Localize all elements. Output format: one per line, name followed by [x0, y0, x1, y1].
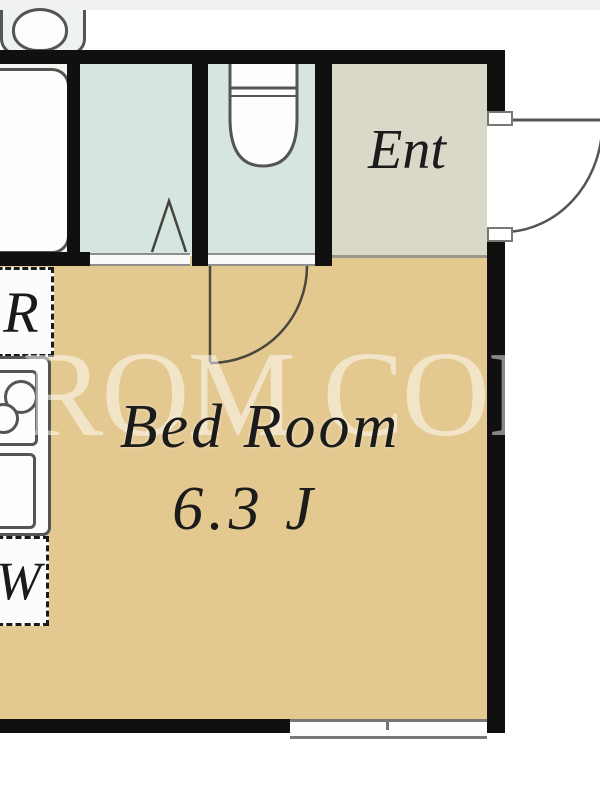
window-icon [290, 719, 487, 739]
wall-under-bath [0, 252, 90, 266]
floorplan-image: R W Ent Bed Room 6.3 J ROM COR [0, 0, 600, 800]
washroom-floor [80, 63, 192, 255]
kitchen-sink-icon [0, 453, 36, 529]
entrance-label: Ent [332, 122, 482, 178]
wall-bottom [0, 719, 290, 733]
wall-washroom-toilet [192, 63, 208, 266]
toilet-door-threshold [207, 253, 315, 266]
washer-label: W [0, 550, 41, 612]
washer-box: W [0, 536, 49, 626]
photo-edge-strip [0, 0, 600, 10]
entrance-door-jamb [487, 111, 513, 126]
window-mullion [386, 722, 389, 730]
refrigerator-box: R [0, 267, 54, 357]
wall-right-upper [487, 50, 505, 117]
toilet-room-floor [208, 63, 315, 255]
bathtub-icon [0, 68, 70, 254]
refrigerator-label: R [3, 279, 38, 346]
entrance-door-arc-icon [509, 132, 600, 232]
entrance-door-jamb [487, 227, 513, 242]
wall-right-lower [487, 235, 505, 733]
sink-bowl-icon [12, 8, 68, 52]
wall-toilet-entrance [315, 63, 332, 266]
bedroom-size-label: 6.3 J [40, 478, 450, 540]
wall-bath-washroom [67, 57, 80, 257]
bedroom-name-label: Bed Room [40, 396, 480, 458]
washroom-door-threshold [90, 253, 190, 266]
